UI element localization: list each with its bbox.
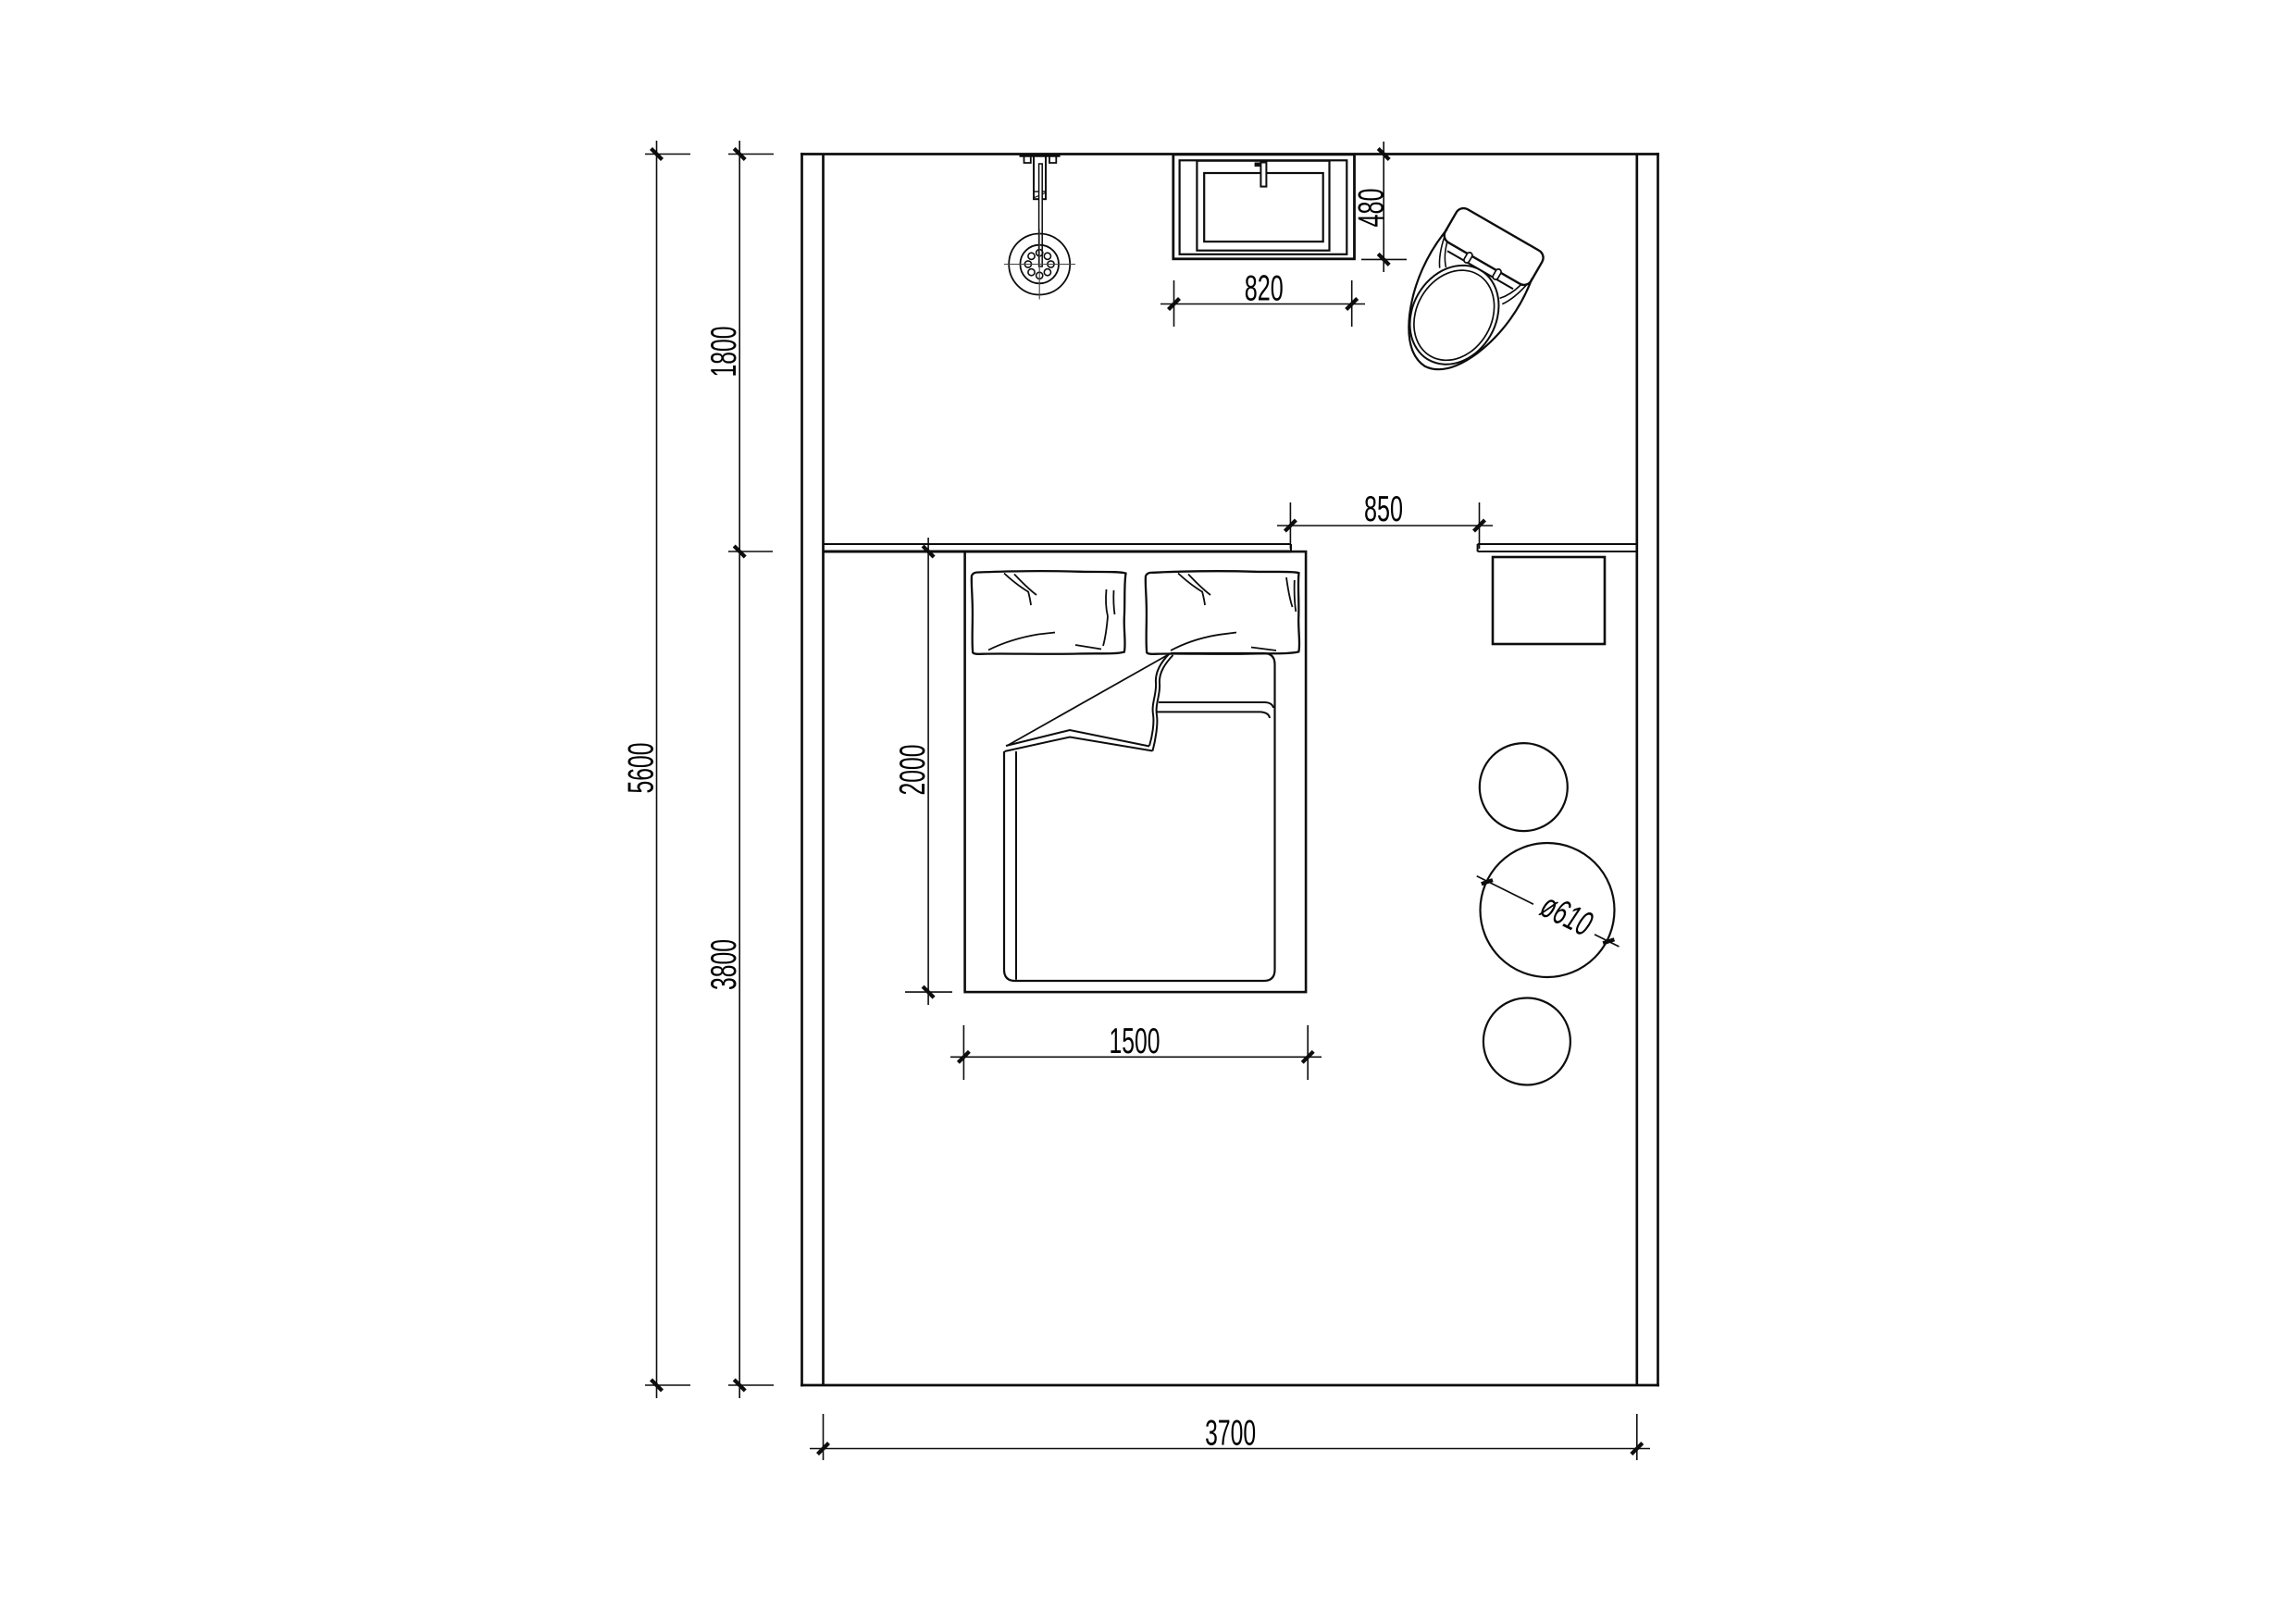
svg-text:1500: 1500: [1110, 1022, 1160, 1061]
svg-text:480: 480: [1352, 189, 1392, 228]
svg-text:5600: 5600: [622, 743, 662, 794]
svg-text:2000: 2000: [893, 745, 933, 796]
svg-text:820: 820: [1245, 269, 1284, 309]
svg-text:1800: 1800: [704, 327, 744, 378]
svg-text:850: 850: [1364, 489, 1403, 529]
svg-text:3800: 3800: [704, 939, 744, 990]
svg-text:3700: 3700: [1205, 1414, 1256, 1454]
svg-text:ø610: ø610: [1534, 886, 1598, 945]
